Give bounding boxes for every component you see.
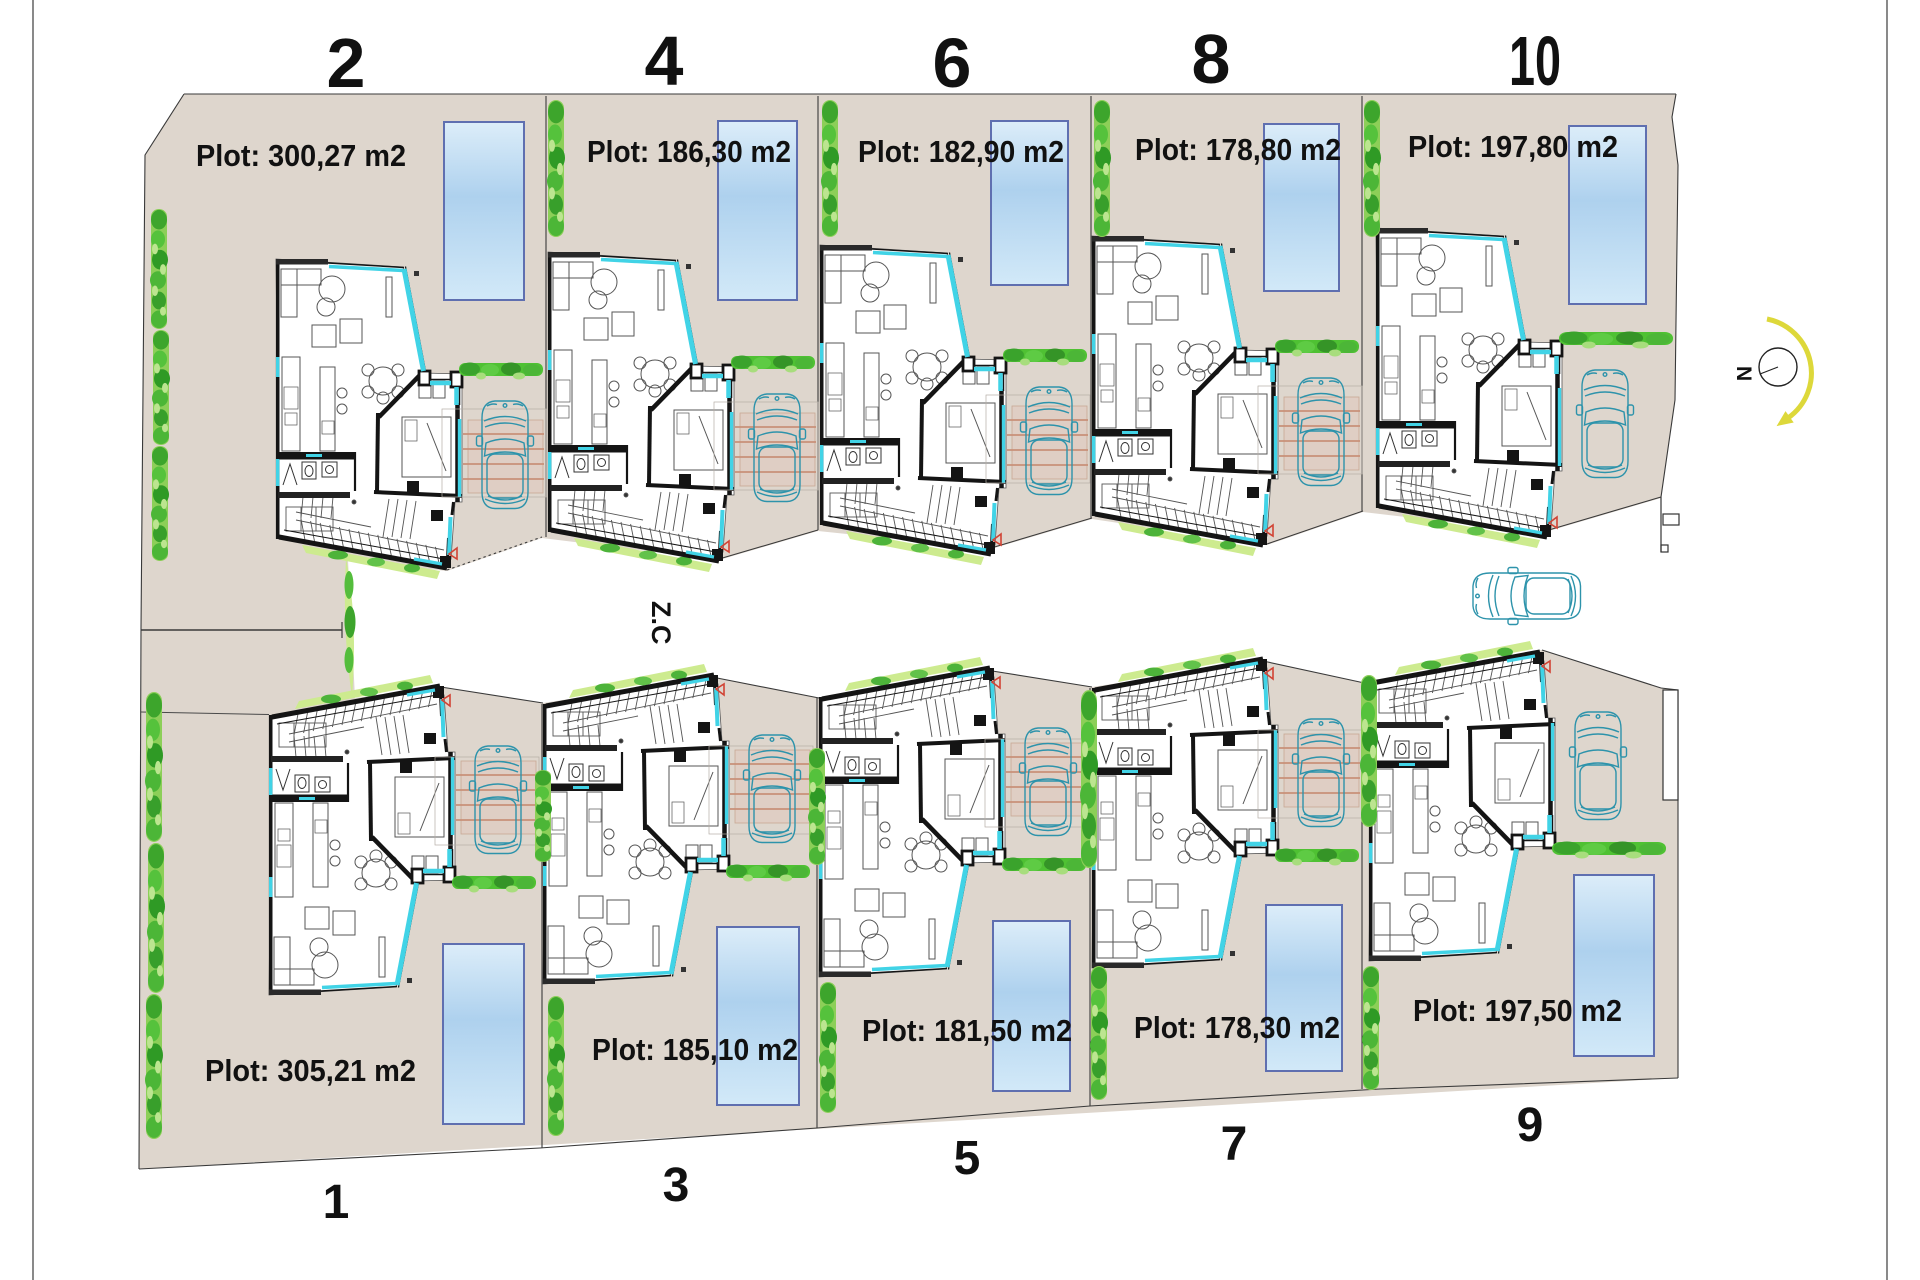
svg-text:8: 8 xyxy=(1192,20,1231,98)
svg-text:Plot: 178,30 m2: Plot: 178,30 m2 xyxy=(1134,1010,1340,1045)
svg-text:Plot: 305,21 m2: Plot: 305,21 m2 xyxy=(205,1053,416,1088)
svg-text:Plot: 182,90 m2: Plot: 182,90 m2 xyxy=(858,134,1064,169)
svg-text:Plot: 185,10 m2: Plot: 185,10 m2 xyxy=(592,1032,798,1067)
svg-text:10: 10 xyxy=(1509,22,1561,100)
svg-text:Plot: 197,80 m2: Plot: 197,80 m2 xyxy=(1408,129,1618,164)
svg-text:7: 7 xyxy=(1221,1118,1248,1171)
svg-text:Plot: 197,50 m2: Plot: 197,50 m2 xyxy=(1413,993,1622,1028)
svg-text:9: 9 xyxy=(1517,1099,1544,1152)
svg-text:Plot: 181,50 m2: Plot: 181,50 m2 xyxy=(862,1013,1072,1048)
svg-text:N: N xyxy=(1732,366,1755,381)
svg-text:5: 5 xyxy=(954,1132,981,1185)
svg-text:Plot: 300,27 m2: Plot: 300,27 m2 xyxy=(196,138,406,173)
svg-text:Plot: 186,30 m2: Plot: 186,30 m2 xyxy=(587,134,791,169)
svg-text:1: 1 xyxy=(323,1176,350,1229)
svg-text:4: 4 xyxy=(645,22,684,100)
svg-text:Plot: 178,80 m2: Plot: 178,80 m2 xyxy=(1135,132,1341,167)
svg-text:Z.C: Z.C xyxy=(646,601,676,645)
svg-text:3: 3 xyxy=(663,1159,690,1212)
svg-text:2: 2 xyxy=(327,24,366,102)
svg-text:6: 6 xyxy=(933,24,972,102)
